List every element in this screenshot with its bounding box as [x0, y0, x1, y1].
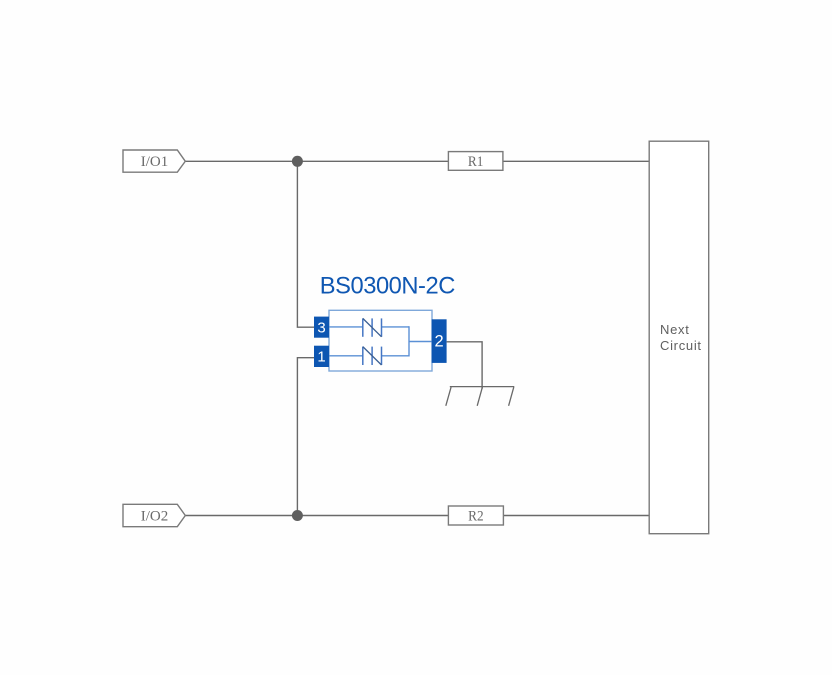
svg-text:2: 2 [435, 332, 444, 350]
svg-text:1: 1 [317, 349, 325, 366]
svg-text:R2: R2 [468, 509, 484, 525]
svg-text:Circuit: Circuit [660, 338, 702, 353]
svg-text:I/O2: I/O2 [141, 508, 169, 524]
svg-text:BS0300N-2C: BS0300N-2C [320, 274, 455, 300]
svg-text:I/O1: I/O1 [141, 154, 169, 170]
svg-text:3: 3 [317, 319, 325, 336]
svg-text:R1: R1 [468, 154, 484, 170]
svg-text:Next: Next [660, 322, 690, 337]
